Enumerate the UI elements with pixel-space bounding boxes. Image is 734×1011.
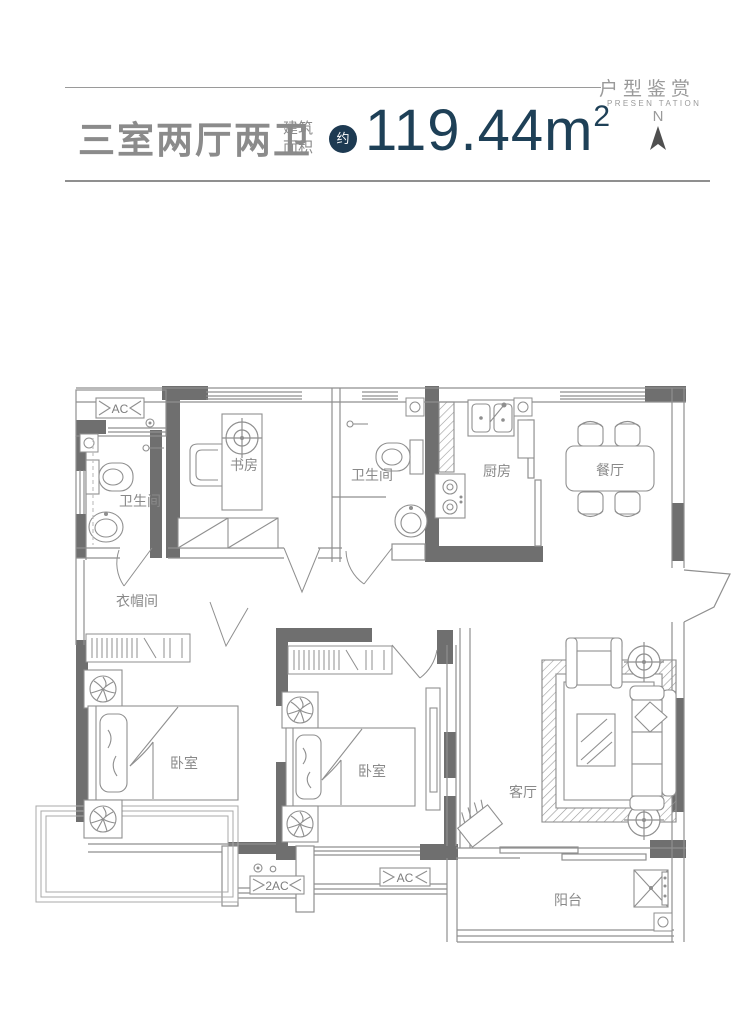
wardrobe-rack — [288, 646, 392, 674]
label-bathroom-2: 卫生间 — [351, 467, 393, 483]
floor-drain-icon — [80, 434, 98, 452]
floor-drain-icon — [406, 398, 424, 416]
bedroom-1-furniture — [84, 634, 238, 838]
plant-icon — [451, 797, 502, 847]
desk-chair — [190, 444, 222, 486]
label-bedroom-1: 卧室 — [170, 755, 198, 771]
label-bedroom-2: 卧室 — [358, 763, 386, 779]
fridge — [518, 420, 534, 458]
washbasin-icon — [395, 505, 427, 537]
label-ac-double: 2AC — [265, 879, 289, 893]
eave-ledge — [36, 806, 238, 902]
label-study: 书房 — [230, 457, 258, 473]
pillow — [100, 714, 127, 792]
kitchen-sink-icon — [468, 400, 514, 436]
pillow — [296, 735, 321, 799]
kitchen-fixtures — [435, 398, 534, 518]
flue-icon — [514, 398, 532, 416]
label-living: 客厅 — [509, 784, 537, 800]
sofa — [630, 686, 676, 810]
coffee-table — [577, 714, 615, 766]
towel-hook-icon — [143, 445, 149, 451]
balcony-fixtures — [634, 870, 672, 931]
label-dining: 餐厅 — [596, 462, 624, 478]
label-cloakroom: 衣帽间 — [116, 593, 158, 609]
floor-drain-icon — [654, 913, 672, 931]
bedroom-2-furniture — [282, 646, 440, 842]
dining-chair — [578, 492, 603, 517]
living-furniture — [451, 638, 676, 847]
label-ac-mid: AC — [397, 871, 414, 885]
bed — [88, 706, 238, 800]
bed — [286, 728, 415, 806]
floor-plan: 卫生间 书房 卫生间 厨房 餐厅 衣帽间 卧室 卧室 客厅 阳台 AC 2AC … — [0, 0, 734, 1011]
dining-chair — [615, 422, 640, 447]
tv-panel — [430, 708, 437, 792]
label-balcony: 阳台 — [554, 892, 582, 908]
armchair — [566, 638, 622, 688]
stove-icon — [435, 474, 465, 518]
study-cabinet — [178, 518, 278, 548]
label-bathroom-1: 卫生间 — [119, 493, 161, 509]
washbasin-icon — [89, 512, 123, 542]
towel-hook-icon — [347, 421, 353, 427]
label-ac-top: AC — [112, 402, 129, 416]
tall-cabinet — [439, 402, 454, 472]
label-kitchen: 厨房 — [483, 463, 511, 479]
washing-machine-icon — [634, 870, 668, 907]
dining-chair — [578, 422, 603, 447]
wardrobe-rack — [86, 634, 190, 662]
dining-chair — [615, 492, 640, 517]
study-furniture — [178, 414, 278, 548]
